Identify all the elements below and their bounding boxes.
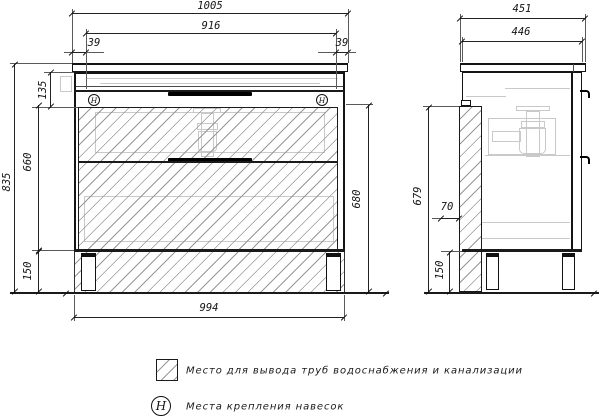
legend-hinge-text: Места крепления навесок [186,402,344,413]
technical-drawing-sheet: H H [0,0,600,417]
dim-value-legs-height-front: 150 [23,262,34,281]
dim-value-offset-right: 39 [336,38,349,49]
legend-hinge-symbol: H [151,396,171,416]
dim-value-body-height: 660 [23,153,34,172]
dim-value-base-width: 994 [200,303,219,314]
legend-hinge-letter: H [156,399,166,413]
legend-hatch-swatch [156,359,178,381]
hinge-mark-letter: H [319,96,326,105]
dim-value-width-total: 1005 [197,1,222,12]
dim-value-width-inner: 916 [202,21,221,32]
legend: Место для вывода труб водоснабжения и ка… [0,0,600,417]
dim-value-pipe-zone-depth: 70 [441,202,454,213]
hinge-mark-circle-right: H [316,94,328,106]
dim-value-legs-height-side: 150 [435,261,446,280]
hinge-mark-letter: H [91,96,98,105]
dim-value-counter-to-body: 135 [38,81,49,100]
dim-value-offset-left: 39 [88,38,101,49]
dim-value-depth-total: 451 [513,4,532,15]
legend-hatch-text: Место для вывода труб водоснабжения и ка… [186,366,523,377]
hinge-mark-circle-left: H [88,94,100,106]
dim-value-height-total: 835 [2,173,13,192]
dim-value-inner-height: 680 [352,190,363,209]
dim-value-back-clear-height: 679 [413,187,424,206]
dim-value-depth-body: 446 [512,27,531,38]
